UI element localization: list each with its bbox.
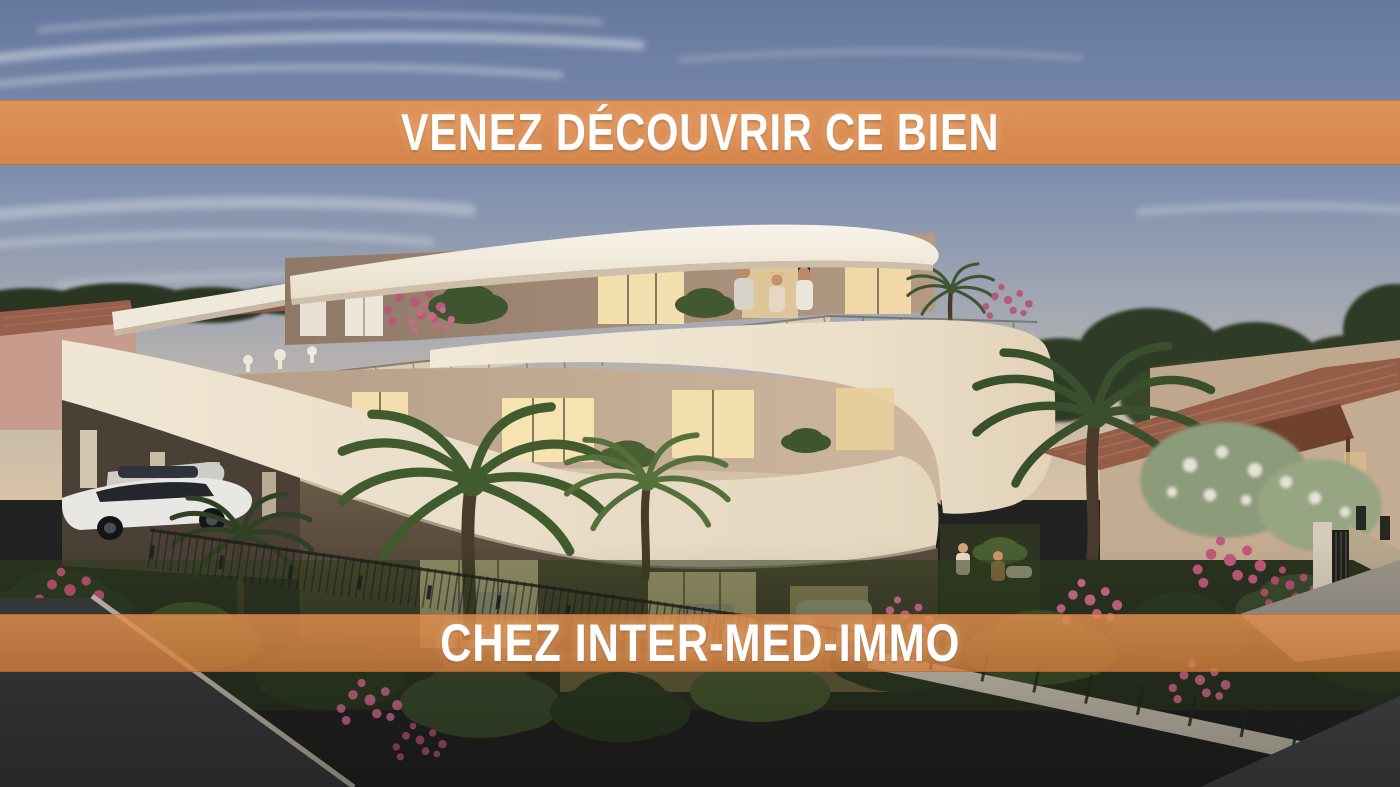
bottom-banner-text: CHEZ INTER-MED-IMMO [440, 617, 960, 670]
bottom-banner: CHEZ INTER-MED-IMMO [0, 614, 1400, 672]
promo-image: VENEZ DÉCOUVRIR CE BIEN CHEZ INTER-MED-I… [0, 0, 1400, 787]
top-banner-text: VENEZ DÉCOUVRIR CE BIEN [401, 107, 1000, 159]
top-banner: VENEZ DÉCOUVRIR CE BIEN [0, 100, 1400, 165]
